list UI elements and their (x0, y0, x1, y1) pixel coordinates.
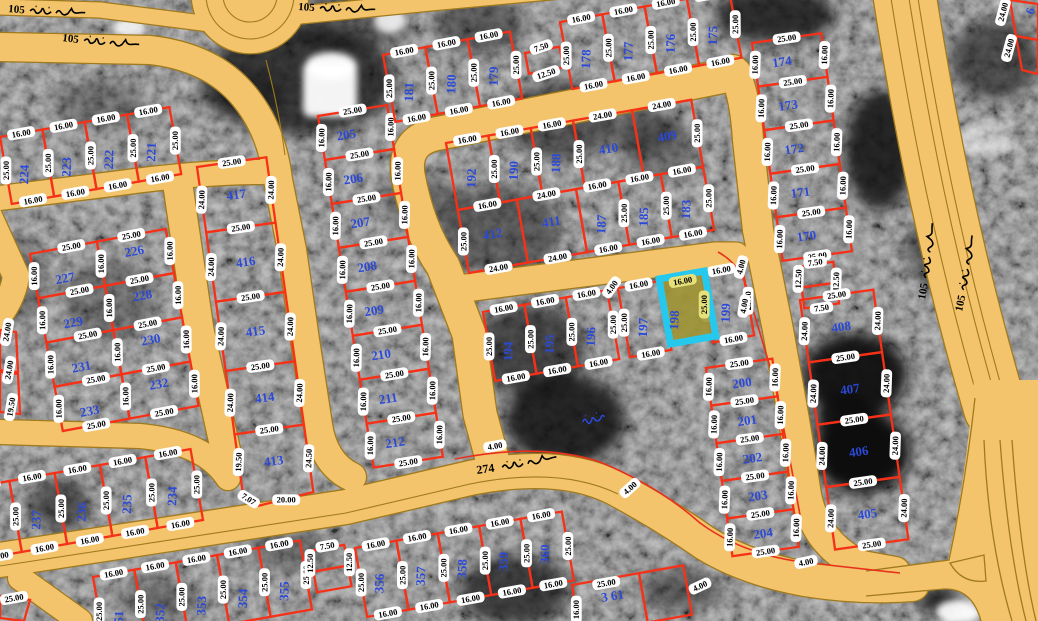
svg-text:203: 203 (747, 487, 769, 505)
svg-text:16.00: 16.00 (703, 377, 714, 396)
svg-text:16.00: 16.00 (96, 254, 106, 273)
svg-text:24.00: 24.00 (808, 384, 819, 403)
svg-text:16.00: 16.00 (571, 600, 581, 619)
svg-text:24.00: 24.00 (899, 498, 910, 517)
svg-text:16.00: 16.00 (413, 293, 423, 312)
svg-text:354: 354 (235, 588, 251, 609)
svg-text:408: 408 (830, 318, 852, 336)
svg-text:359: 359 (495, 551, 511, 572)
svg-text:25.00: 25.00 (1, 161, 11, 180)
svg-text:16.00: 16.00 (104, 298, 114, 317)
svg-text:181: 181 (401, 82, 417, 102)
svg-text:24.00: 24.00 (215, 327, 226, 346)
svg-text:16.00: 16.00 (120, 387, 130, 406)
svg-text:16.00: 16.00 (406, 249, 416, 268)
svg-text:25.00: 25.00 (85, 146, 95, 165)
svg-text:16.00: 16.00 (434, 425, 444, 444)
svg-text:16.00: 16.00 (837, 176, 848, 195)
svg-text:211: 211 (378, 389, 399, 407)
svg-text:355: 355 (276, 581, 292, 602)
svg-text:25.00: 25.00 (703, 189, 713, 208)
svg-text:207: 207 (349, 213, 371, 231)
svg-text:24.00: 24.00 (294, 383, 305, 402)
svg-text:16.00: 16.00 (750, 55, 761, 74)
svg-text:24.00: 24.00 (206, 257, 217, 276)
svg-text:24.00: 24.00 (285, 317, 296, 336)
svg-text:16.00: 16.00 (173, 286, 183, 305)
svg-text:16.00: 16.00 (420, 337, 430, 356)
svg-text:197: 197 (635, 317, 651, 338)
svg-text:414: 414 (254, 388, 276, 406)
svg-text:105: 105 (8, 3, 26, 16)
svg-text:16.00: 16.00 (843, 220, 854, 239)
svg-text:234: 234 (164, 486, 180, 507)
svg-text:24.00: 24.00 (825, 509, 836, 528)
svg-text:25.00: 25.00 (619, 204, 629, 223)
svg-text:16.00: 16.00 (714, 452, 725, 471)
svg-text:25.00: 25.00 (218, 580, 228, 599)
svg-text:16.00: 16.00 (724, 528, 735, 547)
svg-text:16.00: 16.00 (351, 348, 361, 367)
svg-text:25.00: 25.00 (101, 491, 111, 510)
svg-text:25.00: 25.00 (730, 15, 740, 34)
svg-text:199: 199 (718, 302, 734, 323)
svg-text:25.00: 25.00 (511, 55, 521, 74)
svg-text:179: 179 (486, 66, 502, 86)
svg-text:417: 417 (225, 185, 247, 203)
svg-text:360: 360 (537, 544, 553, 564)
svg-text:25.00: 25.00 (489, 159, 499, 178)
svg-text:16.00: 16.00 (358, 392, 368, 411)
svg-text:351: 351 (111, 610, 127, 621)
svg-text:24.00: 24.00 (881, 374, 892, 393)
svg-text:25.00: 25.00 (259, 573, 269, 592)
svg-text:25.00: 25.00 (56, 499, 66, 518)
svg-text:175: 175 (705, 25, 721, 45)
svg-text:25.00: 25.00 (426, 71, 436, 90)
svg-text:16.00: 16.00 (791, 518, 802, 537)
svg-text:201: 201 (736, 411, 757, 429)
svg-text:25.00: 25.00 (384, 79, 394, 98)
svg-text:25.00: 25.00 (525, 330, 535, 349)
svg-text:16.00: 16.00 (337, 260, 347, 279)
svg-text:16.00: 16.00 (831, 132, 842, 151)
svg-text:16.00: 16.00 (29, 267, 39, 286)
svg-text:16.00: 16.00 (719, 490, 730, 509)
svg-text:25.00: 25.00 (603, 38, 613, 57)
svg-text:25.00: 25.00 (619, 313, 629, 332)
svg-text:25.00: 25.00 (561, 46, 571, 65)
svg-text:16.00: 16.00 (54, 399, 64, 418)
svg-text:16.00: 16.00 (709, 415, 720, 434)
svg-text:25.00: 25.00 (469, 63, 479, 82)
svg-text:16.00: 16.00 (165, 241, 175, 260)
svg-text:236: 236 (74, 502, 90, 523)
svg-text:25.00: 25.00 (192, 475, 202, 494)
svg-text:187: 187 (593, 214, 609, 235)
svg-text:7.50: 7.50 (807, 256, 823, 268)
svg-text:25.00: 25.00 (646, 30, 656, 49)
svg-text:24.50: 24.50 (303, 449, 314, 468)
svg-text:24.00: 24.00 (890, 436, 901, 455)
svg-text:25.00: 25.00 (458, 232, 468, 251)
svg-text:274: 274 (475, 461, 495, 477)
svg-text:413: 413 (263, 452, 285, 470)
svg-text:180: 180 (443, 74, 459, 94)
svg-text:356: 356 (371, 573, 387, 594)
svg-text:209: 209 (363, 301, 385, 319)
svg-text:195: 195 (541, 334, 557, 355)
svg-text:16.00: 16.00 (112, 343, 122, 362)
svg-text:415: 415 (245, 322, 267, 340)
svg-text:172: 172 (783, 140, 804, 158)
svg-text:16.00: 16.00 (45, 355, 55, 374)
svg-text:16.00: 16.00 (181, 330, 191, 349)
svg-text:16.00: 16.00 (316, 128, 326, 147)
svg-text:358: 358 (454, 558, 470, 579)
svg-text:221: 221 (143, 142, 159, 162)
svg-text:16.00: 16.00 (780, 443, 791, 462)
svg-text:357: 357 (413, 566, 429, 587)
svg-text:177: 177 (620, 41, 636, 61)
svg-text:25.00: 25.00 (567, 322, 577, 341)
svg-text:19.50: 19.50 (233, 452, 244, 471)
svg-text:16.00: 16.00 (392, 161, 402, 180)
svg-text:16.00: 16.00 (770, 368, 781, 387)
svg-text:25.00: 25.00 (531, 152, 541, 171)
svg-text:25.00: 25.00 (521, 544, 531, 563)
svg-text:25.00: 25.00 (356, 573, 366, 592)
svg-text:173: 173 (777, 96, 799, 114)
svg-text:25.00: 25.00 (397, 566, 407, 585)
svg-text:16.00: 16.00 (344, 304, 354, 323)
svg-text:16.00: 16.00 (762, 142, 773, 161)
svg-text:405: 405 (857, 505, 879, 523)
svg-text:188: 188 (548, 153, 564, 174)
svg-text:24.00: 24.00 (225, 393, 236, 412)
svg-text:16.00: 16.00 (775, 405, 786, 424)
svg-text:20.00: 20.00 (277, 495, 296, 505)
svg-text:237: 237 (28, 510, 44, 531)
svg-text:25.00: 25.00 (146, 483, 156, 502)
svg-text:16.00: 16.00 (774, 229, 785, 248)
svg-text:16.00: 16.00 (785, 481, 796, 500)
svg-text:210: 210 (370, 345, 392, 363)
svg-text:16.00: 16.00 (819, 45, 830, 64)
svg-text:200: 200 (731, 374, 752, 392)
svg-text:194: 194 (500, 341, 516, 362)
svg-text:416: 416 (235, 253, 257, 271)
svg-text:24.00: 24.00 (799, 321, 810, 340)
svg-text:25.00: 25.00 (170, 131, 180, 150)
svg-text:196: 196 (583, 326, 599, 347)
svg-text:222: 222 (101, 150, 117, 170)
svg-text:25.00: 25.00 (688, 23, 698, 42)
svg-text:202: 202 (742, 449, 763, 467)
svg-text:25.00: 25.00 (608, 315, 618, 334)
svg-text:25.00: 25.00 (128, 139, 138, 158)
svg-text:16.00: 16.00 (330, 216, 340, 235)
svg-text:25.00: 25.00 (480, 551, 490, 570)
svg-text:223: 223 (58, 156, 74, 177)
svg-text:208: 208 (356, 257, 378, 275)
svg-text:16.00: 16.00 (756, 99, 767, 118)
svg-text:25.00: 25.00 (661, 196, 671, 215)
svg-text:24.00: 24.00 (816, 446, 827, 465)
svg-text:16.00: 16.00 (323, 172, 333, 191)
svg-text:16.00: 16.00 (189, 374, 199, 393)
svg-text:24.00: 24.00 (196, 190, 207, 209)
svg-text:204: 204 (752, 524, 774, 542)
svg-text:12.50: 12.50 (305, 554, 315, 573)
svg-text:176: 176 (663, 33, 679, 53)
svg-text:7.50: 7.50 (813, 302, 829, 314)
svg-text:25.00: 25.00 (43, 153, 53, 172)
svg-text:105: 105 (62, 32, 80, 46)
svg-text:25.00: 25.00 (563, 536, 573, 555)
svg-text:192: 192 (463, 168, 479, 188)
svg-text:406: 406 (848, 442, 870, 460)
svg-text:205: 205 (335, 125, 357, 143)
svg-text:25.00: 25.00 (439, 558, 449, 577)
svg-text:190: 190 (506, 161, 522, 181)
svg-text:198: 198 (666, 310, 682, 331)
svg-text:12.50: 12.50 (344, 553, 354, 572)
svg-text:352: 352 (152, 603, 168, 621)
svg-text:105: 105 (298, 1, 316, 14)
svg-text:16.00: 16.00 (365, 436, 375, 455)
svg-text:353: 353 (193, 595, 209, 616)
svg-text:212: 212 (384, 433, 406, 451)
svg-text:171: 171 (790, 183, 811, 201)
svg-text:25.00: 25.00 (484, 337, 494, 356)
svg-text:16.00: 16.00 (399, 205, 409, 224)
svg-text:170: 170 (796, 227, 817, 245)
svg-text:25.00: 25.00 (699, 295, 709, 314)
svg-text:25.00: 25.00 (692, 124, 702, 143)
svg-text:174: 174 (771, 53, 793, 71)
svg-text:12.50: 12.50 (793, 269, 804, 288)
svg-text:16.00: 16.00 (768, 186, 779, 205)
svg-text:183: 183 (678, 199, 694, 220)
svg-text:25.00: 25.00 (135, 595, 145, 614)
svg-text:206: 206 (342, 170, 364, 188)
svg-text:178: 178 (578, 49, 594, 69)
svg-text:235: 235 (119, 494, 135, 515)
svg-text:16.00: 16.00 (427, 381, 437, 400)
svg-text:24.00: 24.00 (872, 311, 883, 330)
svg-text:25.00: 25.00 (94, 602, 104, 621)
svg-text:16.00: 16.00 (37, 311, 47, 330)
svg-text:16.00: 16.00 (825, 89, 836, 108)
svg-text:24.00: 24.00 (275, 248, 286, 267)
svg-text:185: 185 (636, 206, 652, 227)
svg-text:25.00: 25.00 (10, 507, 20, 526)
svg-text:25.00: 25.00 (177, 587, 187, 606)
svg-text:224: 224 (16, 164, 32, 185)
svg-text:24.00: 24.00 (265, 180, 276, 199)
svg-text:25.00: 25.00 (574, 145, 584, 164)
svg-text:407: 407 (839, 380, 861, 398)
